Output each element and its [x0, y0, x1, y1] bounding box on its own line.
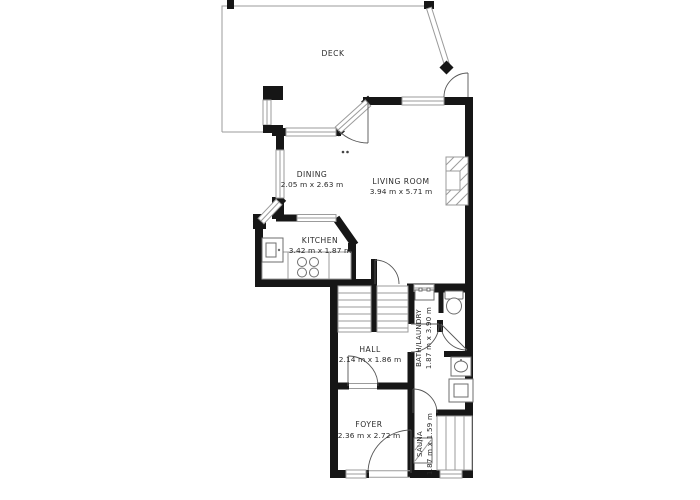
- bath-sink: [415, 288, 434, 300]
- kitchen-room-dims: 3.42 m x 1.87 m: [289, 246, 352, 255]
- hall-room-label: HALL: [359, 345, 381, 354]
- shower: [441, 324, 467, 350]
- hall-room-dims: 2.14 m x 1.86 m: [339, 355, 402, 364]
- foyer-room-dims: 2.36 m x 2.72 m: [338, 431, 401, 440]
- sauna-room-dims: 1.87 m x 1.59 m: [426, 413, 434, 475]
- floor-plan-canvas: DECK DINING 2.05 m x 2.63 m LIVING ROOM …: [0, 0, 700, 500]
- kitchen-sink-unit: [262, 238, 283, 262]
- living-room-dims: 3.94 m x 5.71 m: [370, 187, 433, 196]
- deck-pillar-and-glass: [263, 86, 283, 133]
- foyer-room-label: FOYER: [355, 420, 382, 429]
- living-room-label: LIVING ROOM: [372, 177, 429, 186]
- washing-machine: [449, 379, 473, 402]
- dining-room-label: DINING: [297, 170, 328, 179]
- door-sauna: [413, 389, 437, 413]
- door-stairs-living: [375, 260, 399, 284]
- ceiling-spot-marks: [342, 151, 349, 154]
- sauna-room-label: SAUNA: [416, 431, 424, 457]
- sauna-bench: [437, 416, 472, 470]
- toilet: [445, 291, 463, 314]
- fireplace: [446, 157, 468, 205]
- dining-room-dims: 2.05 m x 2.63 m: [281, 180, 344, 189]
- door-deck: [444, 73, 468, 97]
- bath-laundry-room-dims: 1.87 m x 3.90 m: [425, 307, 433, 369]
- deck-room-label: DECK: [322, 49, 345, 58]
- floor-plan-page: DECK DINING 2.05 m x 2.63 m LIVING ROOM …: [0, 0, 700, 500]
- kitchen-room-label: KITCHEN: [302, 236, 338, 245]
- bath-laundry-room-label: BATH/LAUNDRY: [415, 309, 423, 367]
- vanity-sink: [451, 357, 471, 376]
- deck-railing: [222, 0, 450, 132]
